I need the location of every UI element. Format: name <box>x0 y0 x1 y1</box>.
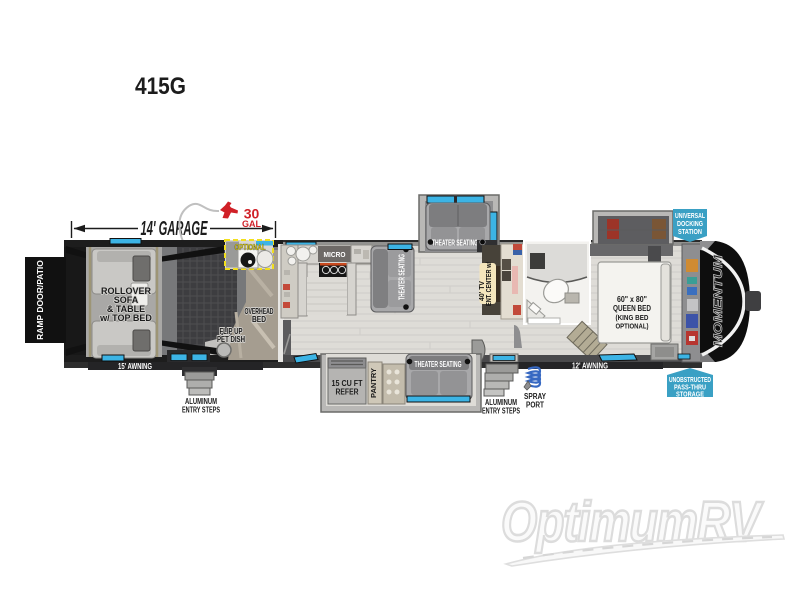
svg-text:ENTRY STEPS: ENTRY STEPS <box>182 406 220 415</box>
svg-text:14' GARAGE: 14' GARAGE <box>141 218 208 240</box>
svg-text:BED: BED <box>252 314 266 324</box>
svg-text:OPTIONAL): OPTIONAL) <box>616 322 649 331</box>
svg-text:PORT: PORT <box>526 401 544 410</box>
svg-text:PET DISH: PET DISH <box>217 335 245 344</box>
svg-text:ENTRY STEPS: ENTRY STEPS <box>482 407 520 416</box>
svg-text:MOMENTUM: MOMENTUM <box>713 254 725 347</box>
svg-text:QUEEN BED: QUEEN BED <box>613 303 651 313</box>
svg-text:w/ TOP BED: w/ TOP BED <box>99 313 152 323</box>
svg-text:OPTIONAL: OPTIONAL <box>235 242 266 252</box>
svg-text:THEATER SEATING: THEATER SEATING <box>432 239 478 248</box>
svg-text:RAMP DOOR/PATIO: RAMP DOOR/PATIO <box>35 260 45 340</box>
svg-text:GAL: GAL <box>242 219 262 229</box>
svg-text:STATION: STATION <box>678 227 702 236</box>
svg-text:ENT. CENTER w/: ENT. CENTER w/ <box>486 262 493 306</box>
svg-text:15' AWNING: 15' AWNING <box>118 362 152 371</box>
svg-text:THEATER SEATING: THEATER SEATING <box>398 254 407 300</box>
svg-text:PANTRY: PANTRY <box>369 368 378 398</box>
svg-text:12' AWNING: 12' AWNING <box>572 362 608 371</box>
svg-text:THEATER SEATING: THEATER SEATING <box>415 360 462 369</box>
svg-text:MICRO: MICRO <box>324 250 346 259</box>
svg-text:40' TV: 40' TV <box>479 281 486 301</box>
svg-text:415G: 415G <box>135 73 186 100</box>
svg-text:REFER: REFER <box>336 388 359 397</box>
svg-text:STORAGE: STORAGE <box>676 390 704 399</box>
